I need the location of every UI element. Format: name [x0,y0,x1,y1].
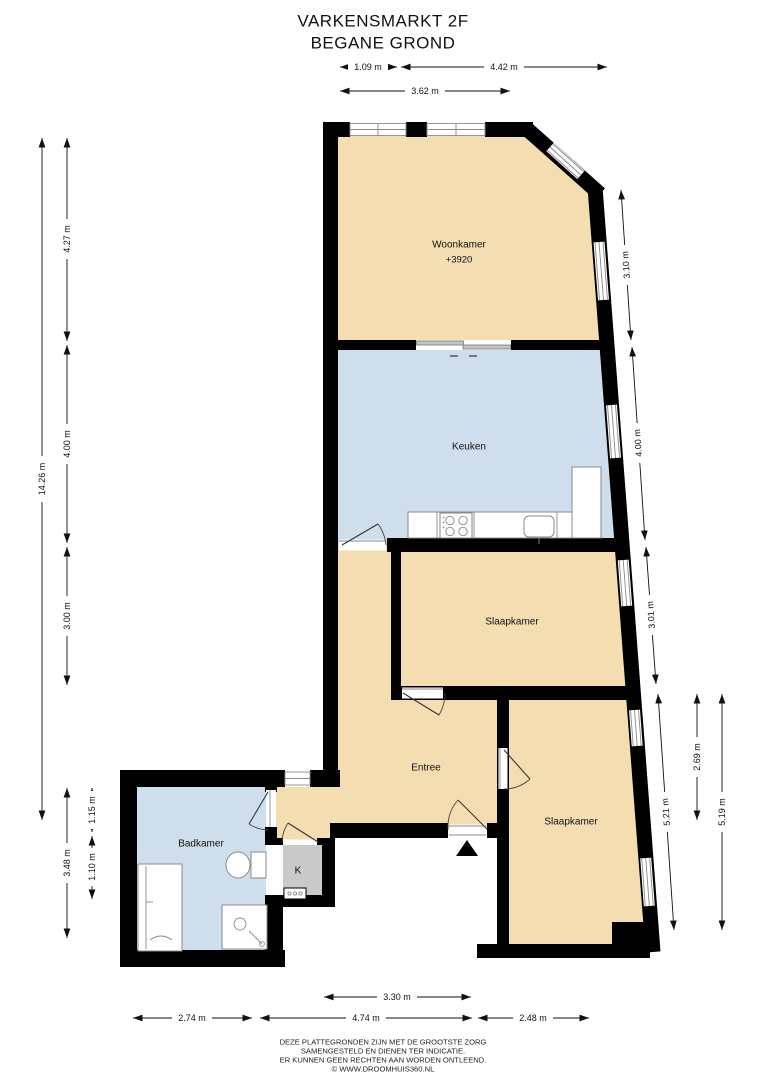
dim-right-521: 5.21 m [658,694,674,930]
dim-left-115: 1.15 m [87,788,97,832]
hallway-top-wall [310,770,340,787]
frontdoor-side-wall [487,823,509,838]
badkamer-left-wall [120,770,137,967]
badkamer-label: Badkamer [178,839,224,850]
svg-text:3.62 m: 3.62 m [411,86,439,96]
slaapkamer-mid-label: Slaapkamer [485,617,539,628]
floorplan-page: VARKENSMARKT 2F BEGANE GROND [0,0,763,1080]
svg-text:3.10 m: 3.10 m [620,251,632,279]
svg-text:4.00 m: 4.00 m [632,429,644,457]
svg-text:4.27 m: 4.27 m [62,225,72,253]
footer-line-4: © WWW.DROOMHUIS360.NL [332,1065,435,1074]
svg-text:5.21 m: 5.21 m [660,798,672,826]
left-wall [323,122,338,779]
top-wall-seg1 [323,122,350,137]
dim-left-427: 4.27 m [62,138,72,341]
slaapkamer-lower-label: Slaapkamer [544,817,598,828]
entrance-arrow-icon [456,840,478,856]
footer-line-1: DEZE PLATTEGRONDEN ZIJN MET DE GROOTSTE … [280,1038,487,1047]
dim-bottom-248: 2.48 m [478,1013,589,1023]
footer-line-3: ER KUNNEN GEEN RECHTEN AAN WORDEN ONTLEE… [280,1056,487,1065]
svg-text:2.48 m: 2.48 m [519,1013,547,1023]
kitchen-tall-cabinet-icon [572,467,601,538]
right-window-5 [642,858,654,906]
svg-text:3.48 m: 3.48 m [62,849,72,877]
svg-text:1.10 m: 1.10 m [87,853,97,881]
keuken-label: Keuken [452,442,486,453]
svg-text:1.09 m: 1.09 m [354,62,382,72]
dim-bottom-330: 3.30 m [324,992,471,1002]
toilet-icon [226,852,266,878]
dim-right-269: 2.69 m [692,694,702,820]
footer-disclaimer: DEZE PLATTEGRONDEN ZIJN MET DE GROOTSTE … [280,1038,487,1074]
top-wall-seg2 [406,122,427,137]
entree-label: Entree [411,763,441,774]
svg-text:1.15 m: 1.15 m [87,796,97,824]
meter-box-icon [284,888,306,899]
hallway-floor [276,787,336,840]
dim-right-310: 3.10 m [620,190,633,340]
svg-text:2.69 m: 2.69 m [692,743,702,771]
dim-top-109: 1.09 m [340,62,397,72]
stove-icon [440,513,472,538]
woonkamer-label: Woonkamer [432,240,486,251]
dim-bottom-474: 4.74 m [260,1013,472,1023]
svg-text:4.74 m: 4.74 m [352,1013,380,1023]
dim-left-400: 4.00 m [62,345,72,543]
svg-text:3.00 m: 3.00 m [62,602,72,630]
dim-left-300: 3.00 m [62,547,72,685]
dim-top-362: 3.62 m [340,86,510,96]
dim-right-400: 4.00 m [632,347,645,540]
dim-left-110: 1.10 m [87,836,97,899]
svg-text:4.42 m: 4.42 m [490,62,518,72]
badkamer-kast-corner-wall [265,895,283,967]
shower-cabinet-icon [138,864,182,951]
svg-text:14.26 m: 14.26 m [37,463,47,496]
shower-tray-icon [222,905,267,949]
svg-text:5.19 m: 5.19 m [717,798,727,826]
badkamer-bottom-wall [120,950,285,967]
dim-right-519: 5.19 m [717,694,727,930]
dim-left-1426: 14.26 m [37,138,47,820]
bottom-right-corner-wall [612,922,657,947]
right-window-3 [619,560,631,606]
hallway-window [285,772,310,785]
svg-text:3.30 m: 3.30 m [383,992,411,1002]
badkamer-top-wall [120,770,285,787]
keuken-bottom-wall [387,538,626,552]
entree-bottom-wall [330,823,448,838]
floor-plan: VARKENSMARKT 2F BEGANE GROND [0,0,763,1080]
dim-top-442: 4.42 m [401,62,607,72]
title-line-1: VARKENSMARKT 2F [297,12,468,31]
right-window-4 [631,710,642,746]
svg-text:4.00 m: 4.00 m [62,430,72,458]
dim-right-301: 3.01 m [645,547,658,684]
plan-title: VARKENSMARKT 2F BEGANE GROND [297,12,468,53]
svg-text:3.01 m: 3.01 m [645,601,657,629]
top-window-2 [427,124,485,136]
woonkamer-sublabel: +3920 [446,255,473,266]
kast-label: K [295,866,302,877]
footer-line-2: SAMENGESTELD EN DIENEN TER INDICATIE. [301,1047,465,1056]
dim-bottom-274: 2.74 m [133,1013,252,1023]
top-window-1 [350,124,406,136]
dim-left-348: 3.48 m [62,788,72,938]
title-line-2: BEGANE GROND [311,34,456,53]
entree-slaapkamer-wall [497,699,509,945]
slaapkamer-mid-left-wall [391,538,401,700]
svg-text:2.74 m: 2.74 m [178,1013,206,1023]
